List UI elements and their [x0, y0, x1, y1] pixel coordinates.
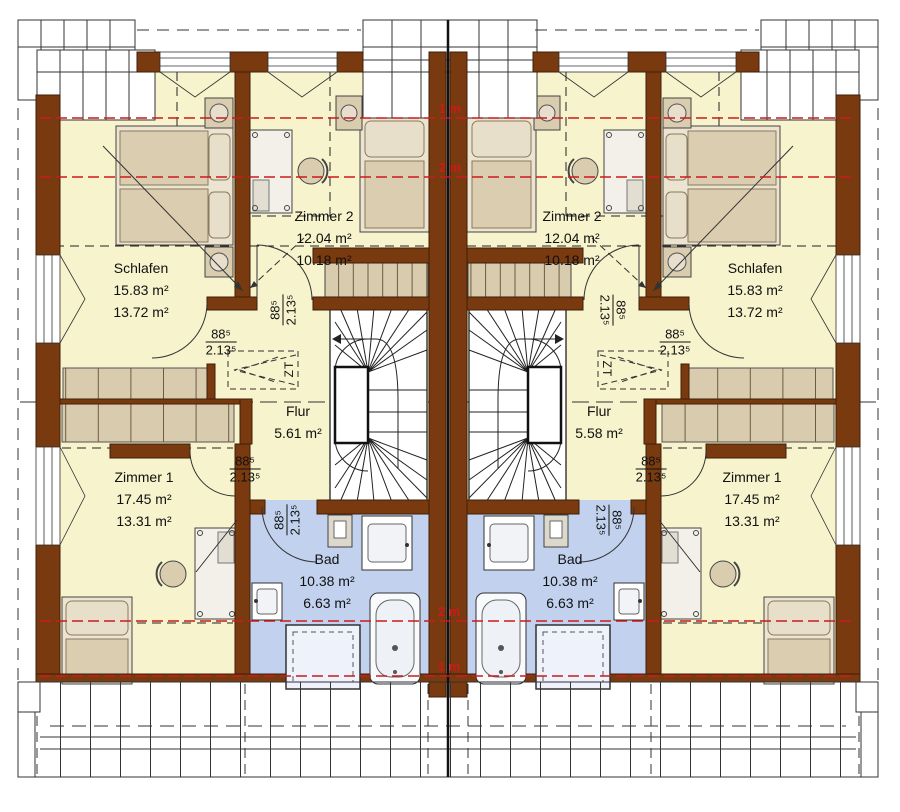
room-label-flur-left: Flur 5.61 m²	[274, 400, 321, 444]
room-label-bad-right: Bad 10.38 m² 6.63 m²	[542, 548, 597, 614]
nightstand-zimmer2-right	[534, 96, 560, 130]
room-label-zimmer1-right: Zimmer 1 17.45 m² 13.31 m²	[722, 466, 781, 532]
room-label-flur-right: Flur 5.58 m²	[575, 400, 622, 444]
door-dim-bad-left: 88⁵2.13⁵	[272, 505, 303, 536]
single-bed-zimmer1-left	[62, 597, 132, 684]
room-label-zimmer1-left: Zimmer 1 17.45 m² 13.31 m²	[114, 466, 173, 532]
door-dim-schlafen-left: 88⁵2.13⁵	[206, 327, 237, 358]
nightstand-zimmer2-left	[336, 96, 362, 130]
floor-plan: Schlafen 15.83 m² 13.72 m² Zimmer 2 12.0…	[0, 0, 900, 812]
room-label-zimmer2-left: Zimmer 2 12.04 m² 10.18 m²	[294, 205, 353, 271]
shower-icon	[286, 625, 360, 689]
door-dim-zimmer1-left: 88⁵2.13⁵	[230, 454, 261, 485]
double-bed-left	[116, 126, 233, 245]
shower-icon	[536, 625, 610, 689]
staircase-left	[330, 308, 427, 502]
hatch-label-left: ZT	[282, 361, 296, 378]
single-bed-zimmer1-right	[764, 597, 834, 684]
height-mark-1m-top: 1 m	[439, 101, 461, 116]
height-mark-2m-top: 2 m	[439, 160, 461, 175]
hatch-label-right: ZT	[600, 361, 614, 378]
staircase-right	[469, 308, 566, 502]
room-label-schlafen-left: Schlafen 15.83 m² 13.72 m²	[113, 257, 168, 323]
single-bed-zimmer2-right	[467, 116, 536, 232]
room-label-schlafen-right: Schlafen 15.83 m² 13.72 m²	[727, 257, 782, 323]
door-dim-zimmer2-right: 88⁵2.13⁵	[598, 295, 629, 326]
height-mark-2m-bottom: 2 m	[438, 604, 460, 619]
single-bed-zimmer2-left	[360, 116, 429, 232]
floor-plan-drawing	[0, 0, 900, 812]
room-label-bad-left: Bad 10.38 m² 6.63 m²	[299, 548, 354, 614]
door-dim-zimmer1-right: 88⁵2.13⁵	[636, 454, 667, 485]
room-label-zimmer2-right: Zimmer 2 12.04 m² 10.18 m²	[542, 205, 601, 271]
height-mark-1m-bottom: 1 m	[438, 659, 460, 674]
door-dim-zimmer2-left: 88⁵2.13⁵	[268, 295, 299, 326]
double-bed-right	[663, 126, 780, 245]
door-dim-bad-right: 88⁵2.13⁵	[594, 505, 625, 536]
door-dim-schlafen-right: 88⁵2.13⁵	[660, 327, 691, 358]
